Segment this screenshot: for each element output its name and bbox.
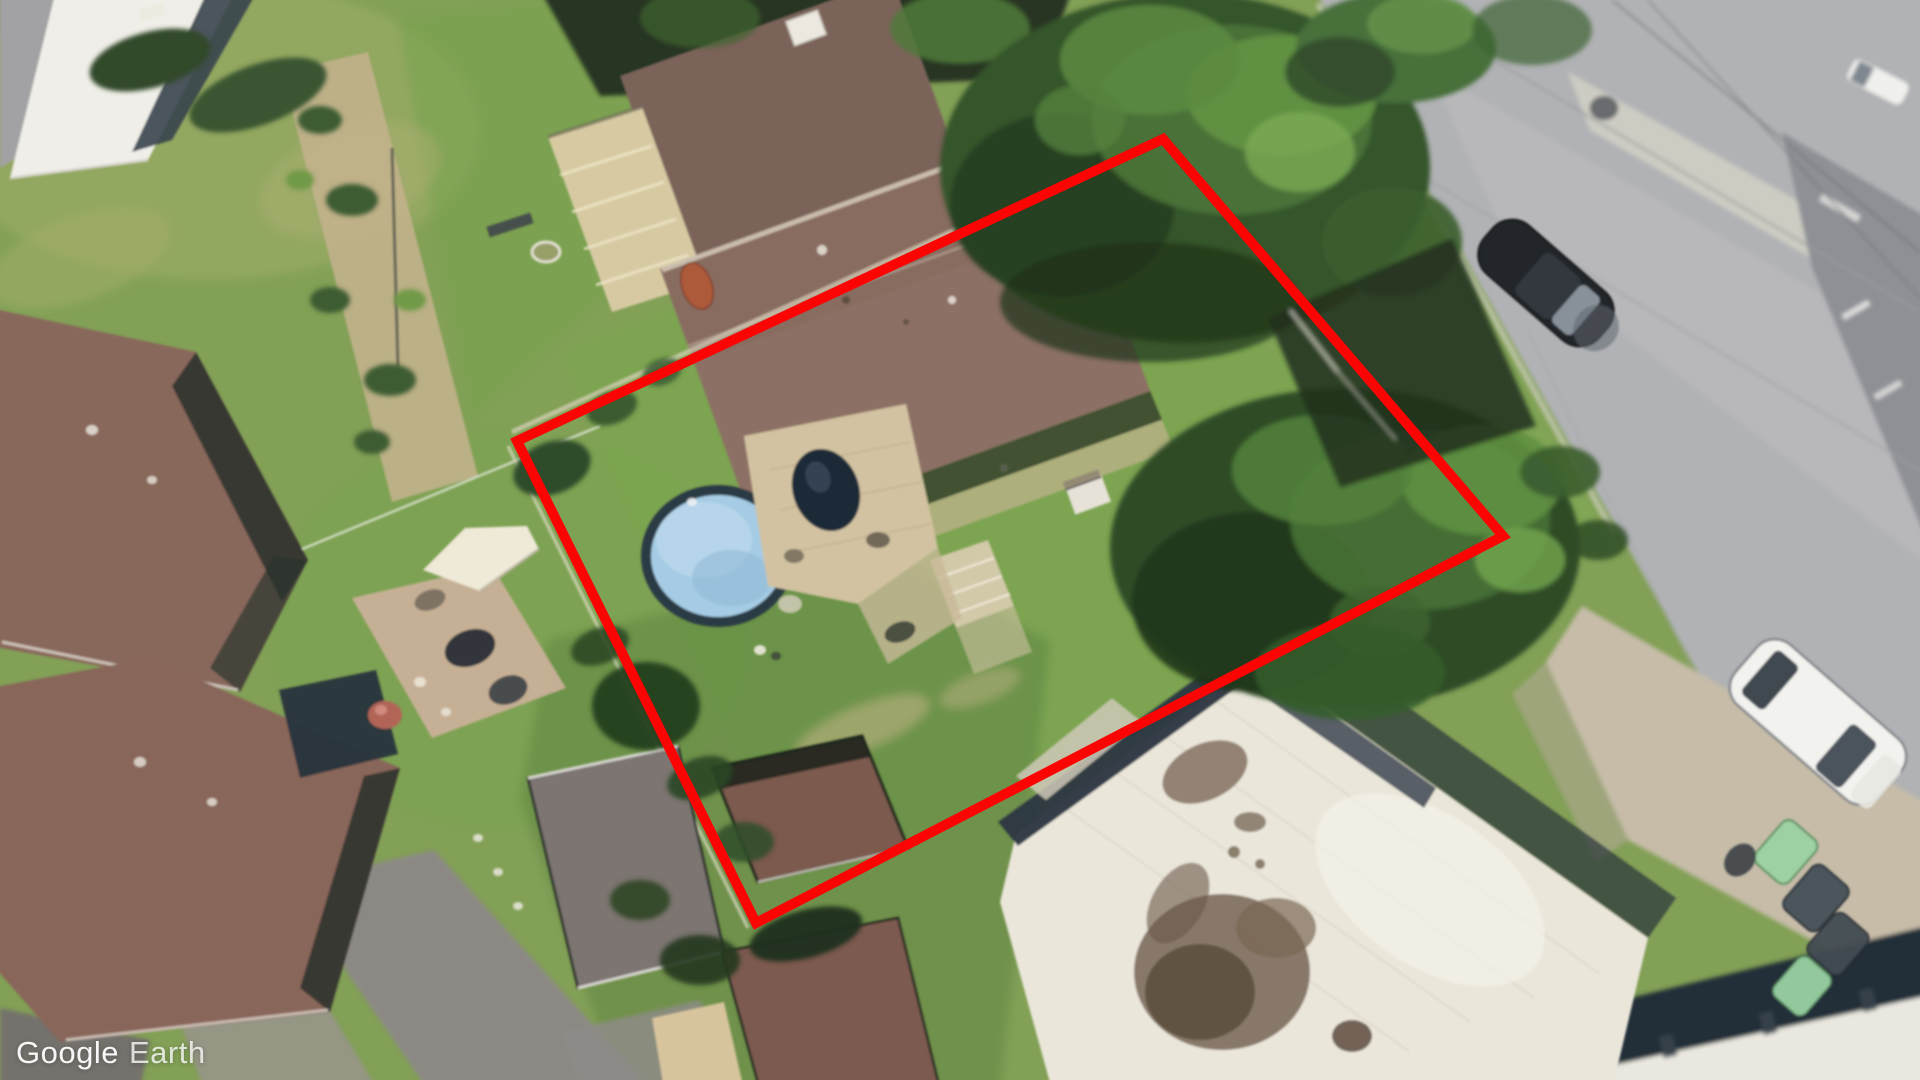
patio-umbrella-red (368, 701, 402, 729)
roof-stain-dot-1 (1228, 846, 1240, 858)
yard-item-white (754, 645, 766, 655)
patio-chair-1 (414, 677, 426, 687)
deck-spot-2 (784, 549, 804, 563)
roof-vent-main-2 (948, 296, 956, 304)
hedge-bottom-1 (660, 935, 740, 985)
hedge-bottom-2 (610, 880, 670, 920)
tree-curb-dark (1285, 37, 1395, 107)
roof-vent-3 (134, 757, 146, 767)
roof-stain-core (1145, 944, 1255, 1040)
garden-plant-5 (354, 430, 390, 454)
yard-item-dark (771, 652, 781, 660)
google-earth-canvas[interactable]: Google Earth (0, 0, 1920, 1080)
pool-ladder (687, 498, 697, 506)
hedge-curb-1 (1520, 446, 1600, 498)
stone-ring (532, 242, 560, 262)
garden-plant-3 (310, 287, 350, 313)
patio-chair-2 (441, 708, 451, 716)
garden-plant-4 (364, 364, 416, 396)
pool-step (778, 595, 802, 613)
aerial-imagery (0, 0, 1920, 1080)
garden-plant-2 (326, 184, 378, 216)
manhole-cover (1591, 97, 1617, 119)
roof-vent-main-1 (817, 245, 827, 255)
roof-vent-4 (207, 798, 217, 806)
tree-east-highlight (1475, 528, 1565, 592)
roof-stain-small (1234, 812, 1266, 832)
fence-dot-1 (473, 834, 483, 842)
tree-north-shade (1000, 242, 1300, 362)
roof-mark-dark-1 (842, 296, 850, 304)
roof-vent-2 (147, 476, 157, 484)
patio-umbrella-highlight (375, 705, 387, 715)
roof-stain-dot-2 (1255, 859, 1265, 869)
tree-north-highlight-2 (1035, 85, 1125, 155)
garden-plant-light-2 (394, 289, 426, 311)
deck-spot-1 (866, 532, 890, 548)
hedge-curb-2 (1568, 520, 1628, 560)
roof-mark-dark-2 (903, 319, 909, 325)
roof-vent-1 (86, 425, 98, 435)
garden-plant-1 (298, 106, 342, 134)
pool-water-shade (692, 550, 772, 606)
garden-plant-light-1 (286, 170, 314, 190)
tree-north-highlight (1245, 112, 1355, 192)
roof-stain-dot-3 (1332, 1020, 1372, 1052)
tree-east-overhang (1255, 624, 1445, 720)
fence-dot-3 (513, 902, 523, 910)
fence-dot-2 (493, 868, 503, 876)
roof-stain-east (1236, 898, 1316, 958)
